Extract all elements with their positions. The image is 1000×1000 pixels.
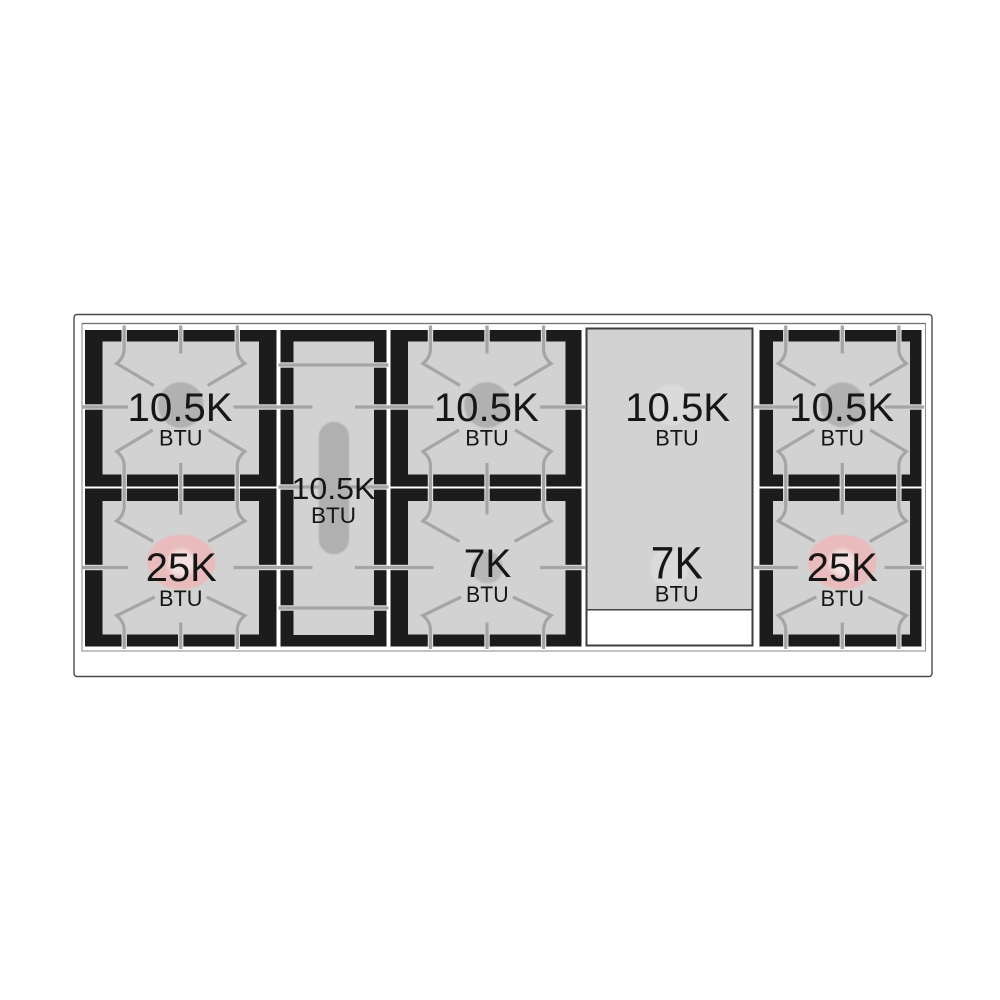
svg-text:BTU: BTU [655,426,699,451]
svg-text:BTU: BTU [821,426,865,451]
svg-text:10.5K: 10.5K [789,386,894,430]
svg-text:BTU: BTU [159,426,203,451]
svg-text:BTU: BTU [821,586,865,611]
svg-text:10.5K: 10.5K [625,386,730,430]
svg-text:25K: 25K [807,546,878,590]
svg-text:25K: 25K [146,546,217,590]
svg-text:BTU: BTU [311,503,356,528]
svg-text:BTU: BTU [465,426,509,451]
svg-text:10.5K: 10.5K [292,472,376,506]
svg-text:BTU: BTU [159,586,203,611]
svg-text:10.5K: 10.5K [434,386,539,430]
svg-text:BTU: BTU [466,582,509,607]
svg-text:7K: 7K [464,542,512,586]
svg-text:BTU: BTU [655,582,699,607]
svg-text:10.5K: 10.5K [128,386,233,430]
